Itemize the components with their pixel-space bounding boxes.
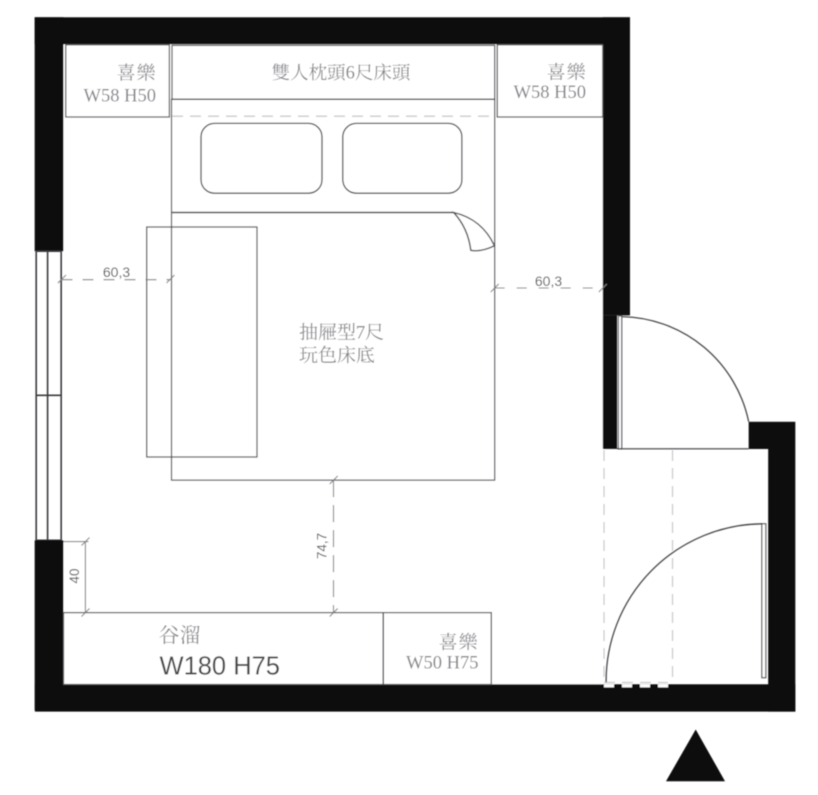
svg-text:60,3: 60,3 xyxy=(535,273,562,289)
svg-text:W50 H75: W50 H75 xyxy=(406,654,478,674)
svg-text:60,3: 60,3 xyxy=(103,264,130,280)
svg-text:W180 H75: W180 H75 xyxy=(160,653,280,681)
svg-text:6: 6 xyxy=(346,64,355,84)
svg-text:74,7: 74,7 xyxy=(315,533,330,559)
svg-text:W58 H50: W58 H50 xyxy=(514,83,586,103)
svg-text:W58 H50: W58 H50 xyxy=(84,87,156,107)
svg-text:40: 40 xyxy=(67,568,82,583)
svg-text:7: 7 xyxy=(356,322,366,343)
